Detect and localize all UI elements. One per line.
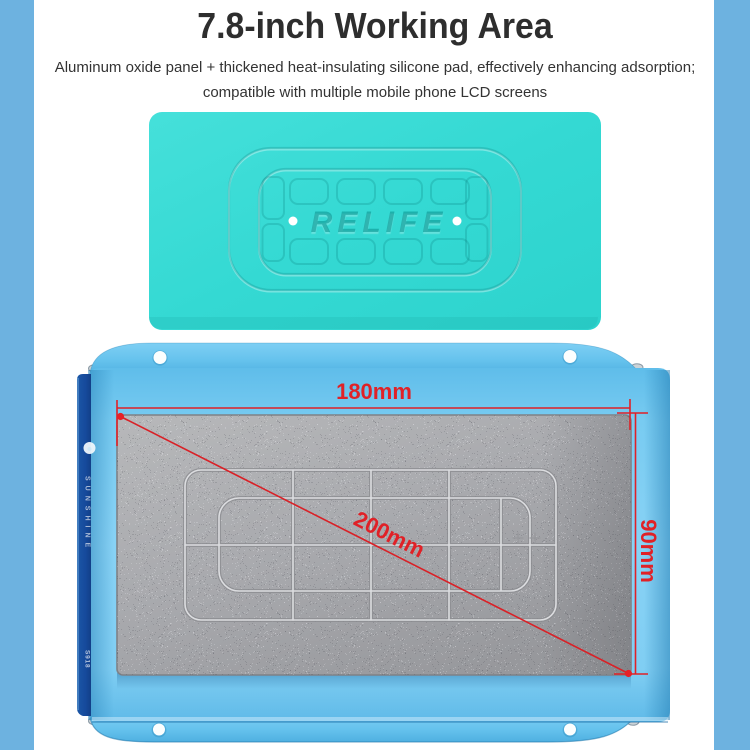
svg-text:S918: S918: [84, 650, 91, 668]
svg-text:SUNSHINE: SUNSHINE: [84, 476, 91, 552]
svg-text:180mm: 180mm: [336, 379, 412, 404]
svg-text:RELIFE: RELIFE: [311, 206, 448, 239]
svg-text:90mm: 90mm: [636, 519, 661, 583]
